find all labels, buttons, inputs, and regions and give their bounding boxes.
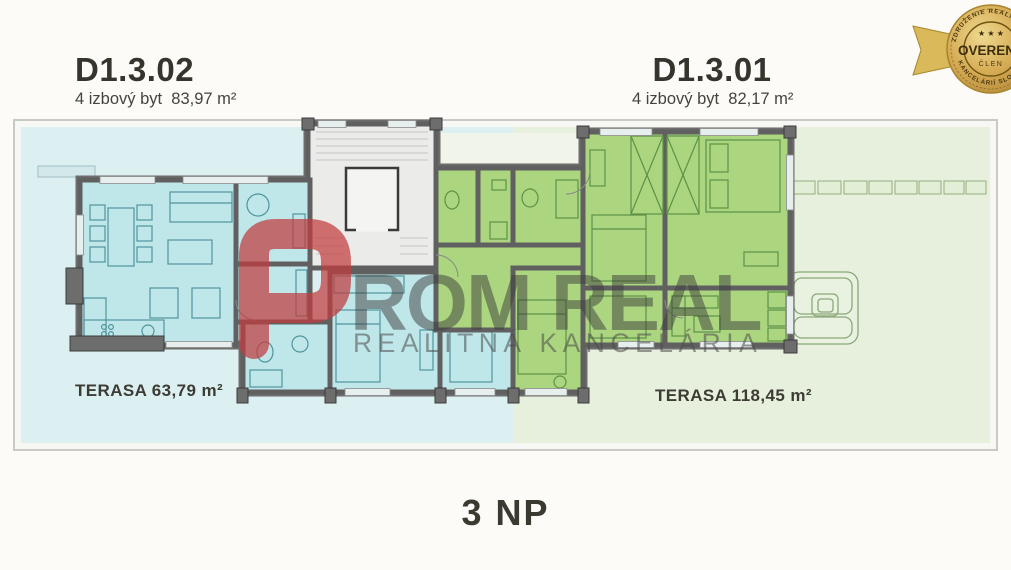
planter-row — [792, 181, 986, 194]
badge-title: OVERENÝ — [958, 43, 1011, 58]
badge-stars: ★ ★ ★ — [978, 29, 1004, 38]
brand-tagline: REALITNÁ KANCELÁRIA — [353, 328, 762, 358]
apartment-left-subtitle: 4 izbový byt 83,97 m² — [75, 90, 236, 109]
apartment-left-id: D1.3.02 — [75, 53, 236, 86]
badge-ribbon — [913, 26, 950, 75]
apartment-left-header: D1.3.02 4 izbový byt 83,97 m² — [75, 53, 236, 109]
terrace-right-label: TERASA 118,45 m² — [655, 386, 812, 406]
planter-left — [38, 166, 95, 177]
floor-label: 3 NP — [0, 492, 1011, 534]
hot-tub — [788, 272, 858, 344]
apartment-right-id: D1.3.01 — [632, 53, 792, 86]
elevator-shaft — [346, 168, 398, 230]
badge-subtitle: ČLEN — [979, 59, 1004, 68]
terrace-left-label: TERASA 63,79 m² — [75, 381, 223, 401]
apartment-right-header: D1.3.01 4 izbový byt 82,17 m² — [632, 53, 792, 109]
floorplan-page: ROM REAL REALITNÁ KANCELÁRIA ZDRUŽENIE R… — [0, 0, 1011, 570]
apartment-right-subtitle: 4 izbový byt 82,17 m² — [632, 90, 792, 109]
